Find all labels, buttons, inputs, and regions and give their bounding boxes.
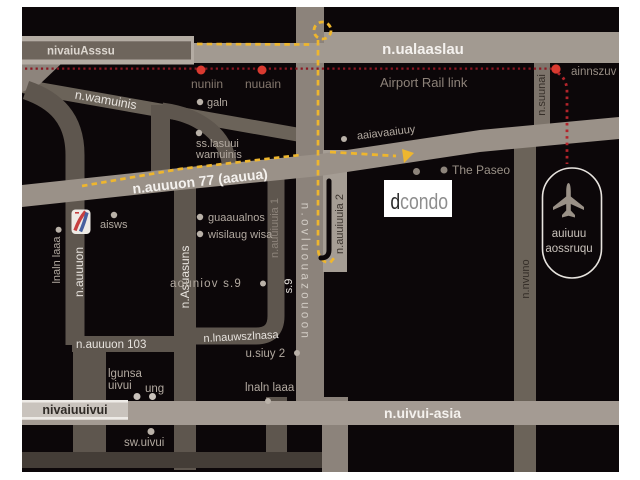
svg-text:sw.uivui: sw.uivui bbox=[124, 437, 164, 449]
svg-text:u.siuy 2: u.siuy 2 bbox=[246, 348, 286, 360]
svg-text:ung: ung bbox=[145, 383, 164, 395]
svg-text:n.ovluouazouoon: n.ovluouazouoon bbox=[299, 203, 311, 342]
svg-text:n.auuuon: n.auuuon bbox=[72, 247, 86, 297]
svg-text:ainnszuv: ainnszuv bbox=[571, 66, 617, 78]
svg-text:n.nvuno: n.nvuno bbox=[520, 259, 532, 298]
svg-text:lnaln laaa: lnaln laaa bbox=[51, 236, 63, 284]
svg-text:dcondo: dcondo bbox=[390, 190, 448, 214]
svg-text:wisilaug wisa: wisilaug wisa bbox=[207, 229, 273, 241]
svg-text:n.suunai: n.suunai bbox=[536, 74, 548, 116]
svg-text:auiuuu: auiuuu bbox=[552, 228, 587, 240]
svg-text:aisws: aisws bbox=[100, 219, 128, 231]
svg-text:lnaln laaa: lnaln laaa bbox=[245, 382, 295, 394]
svg-text:nuniin: nuniin bbox=[191, 77, 223, 91]
svg-text:n.ualaaslau: n.ualaaslau bbox=[382, 41, 464, 58]
svg-text:n.Asuasuns: n.Asuasuns bbox=[178, 246, 192, 309]
svg-text:guaaualnos: guaaualnos bbox=[208, 212, 265, 224]
svg-text:Airport Rail link: Airport Rail link bbox=[380, 75, 468, 90]
svg-text:n.auuuon 103: n.auuuon 103 bbox=[76, 339, 146, 351]
svg-text:n.auuiuuia 1: n.auuiuuia 1 bbox=[269, 198, 281, 258]
svg-text:nivaiuAsssu: nivaiuAsssu bbox=[47, 46, 115, 58]
svg-text:nivaiuuivui: nivaiuuivui bbox=[42, 403, 107, 417]
svg-text:s.9: s.9 bbox=[283, 279, 295, 294]
svg-text:uivui: uivui bbox=[108, 380, 132, 392]
svg-text:n.uivui-asia: n.uivui-asia bbox=[384, 405, 461, 421]
svg-text:wamuinis: wamuinis bbox=[195, 149, 242, 161]
svg-text:aossruqu: aossruqu bbox=[545, 243, 592, 255]
svg-text:galn: galn bbox=[207, 97, 228, 109]
svg-text:aouniov s.9: aouniov s.9 bbox=[170, 278, 242, 290]
svg-text:lgunsa: lgunsa bbox=[108, 368, 142, 380]
svg-text:The Paseo: The Paseo bbox=[452, 163, 510, 177]
svg-text:n.auuiuuia 2: n.auuiuuia 2 bbox=[334, 194, 346, 254]
svg-text:nuuain: nuuain bbox=[245, 77, 281, 91]
